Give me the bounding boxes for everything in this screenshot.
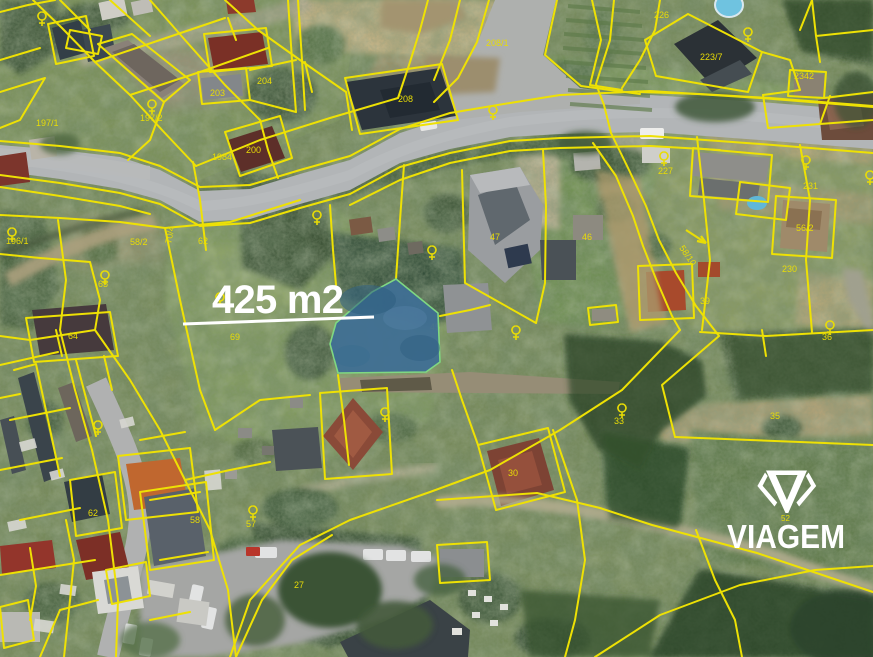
svg-text:33: 33 (614, 416, 624, 426)
svg-text:69: 69 (230, 332, 240, 342)
svg-text:226: 226 (654, 10, 669, 20)
svg-text:35: 35 (770, 411, 780, 421)
svg-text:2342: 2342 (794, 71, 814, 81)
svg-text:VIAGEM: VIAGEM (727, 518, 845, 555)
svg-text:223/7: 223/7 (700, 52, 723, 62)
svg-text:64: 64 (68, 331, 78, 341)
svg-text:58/2: 58/2 (130, 237, 148, 247)
svg-text:65: 65 (98, 279, 108, 289)
svg-text:208: 208 (398, 94, 413, 104)
svg-text:231: 231 (803, 181, 818, 191)
svg-text:227: 227 (658, 166, 673, 176)
svg-text:197/1: 197/1 (36, 118, 59, 128)
svg-text:203: 203 (210, 88, 225, 98)
svg-text:425 m2: 425 m2 (212, 278, 344, 322)
svg-text:62: 62 (198, 236, 208, 246)
svg-text:230: 230 (782, 264, 797, 274)
svg-text:57: 57 (246, 519, 256, 529)
svg-text:58: 58 (190, 515, 200, 525)
svg-text:56/2: 56/2 (796, 223, 814, 233)
svg-text:30: 30 (508, 468, 518, 478)
svg-text:208/1: 208/1 (486, 38, 509, 48)
svg-text:196/1: 196/1 (6, 236, 29, 246)
svg-text:1984: 1984 (212, 152, 232, 162)
svg-text:27: 27 (294, 580, 304, 590)
svg-text:47: 47 (490, 232, 500, 242)
svg-text:204: 204 (257, 76, 272, 86)
svg-text:36: 36 (822, 332, 832, 342)
svg-text:46: 46 (582, 232, 592, 242)
svg-text:62: 62 (88, 508, 98, 518)
svg-text:197/2: 197/2 (140, 113, 163, 123)
svg-text:200: 200 (246, 145, 261, 155)
svg-text:39: 39 (700, 296, 710, 306)
